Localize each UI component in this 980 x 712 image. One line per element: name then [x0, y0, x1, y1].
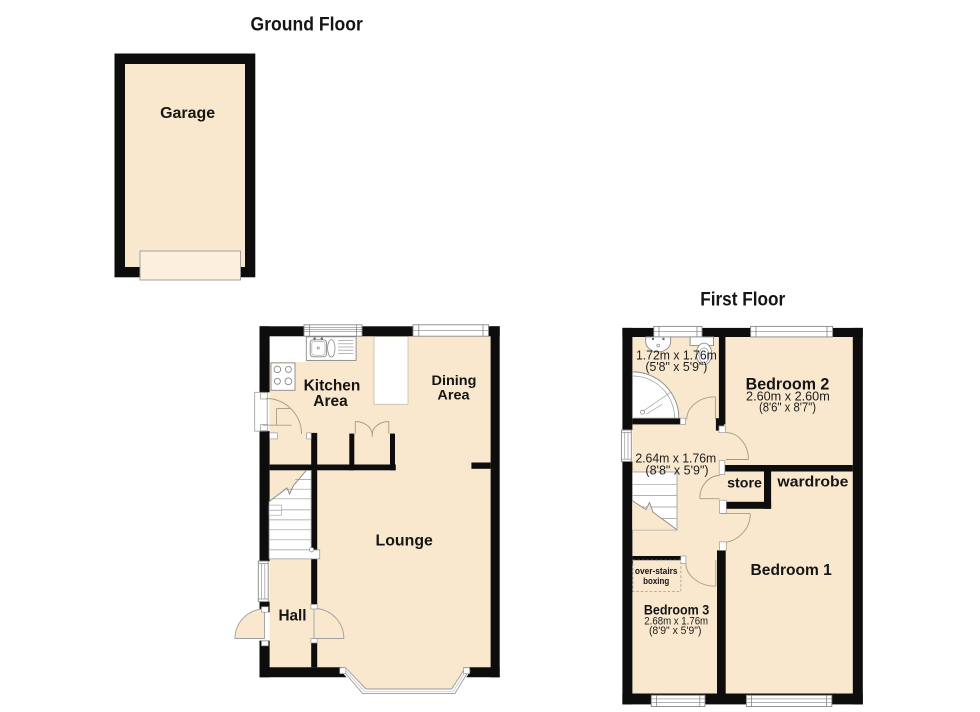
svg-text:Area: Area	[437, 386, 469, 402]
svg-text:(5'8" x 5'9"): (5'8" x 5'9")	[645, 360, 707, 374]
svg-text:Garage: Garage	[160, 105, 215, 122]
svg-text:boxing: boxing	[643, 576, 669, 587]
svg-text:store: store	[727, 475, 762, 491]
svg-text:(8'6" x 8'7"): (8'6" x 8'7")	[759, 401, 816, 415]
svg-text:Dining: Dining	[432, 372, 477, 388]
svg-text:Hall: Hall	[278, 608, 306, 625]
svg-text:Kitchen: Kitchen	[304, 377, 361, 394]
svg-text:First Floor: First Floor	[700, 289, 786, 310]
svg-text:Bedroom 1: Bedroom 1	[751, 562, 833, 579]
svg-text:Lounge: Lounge	[376, 533, 434, 550]
svg-text:Ground Floor: Ground Floor	[251, 14, 364, 35]
svg-text:wardrobe: wardrobe	[776, 474, 848, 490]
svg-text:(8'9" x 5'9"): (8'9" x 5'9")	[649, 625, 702, 637]
svg-text:(8'8" x 5'9"): (8'8" x 5'9")	[645, 464, 708, 478]
svg-text:Area: Area	[313, 393, 347, 410]
